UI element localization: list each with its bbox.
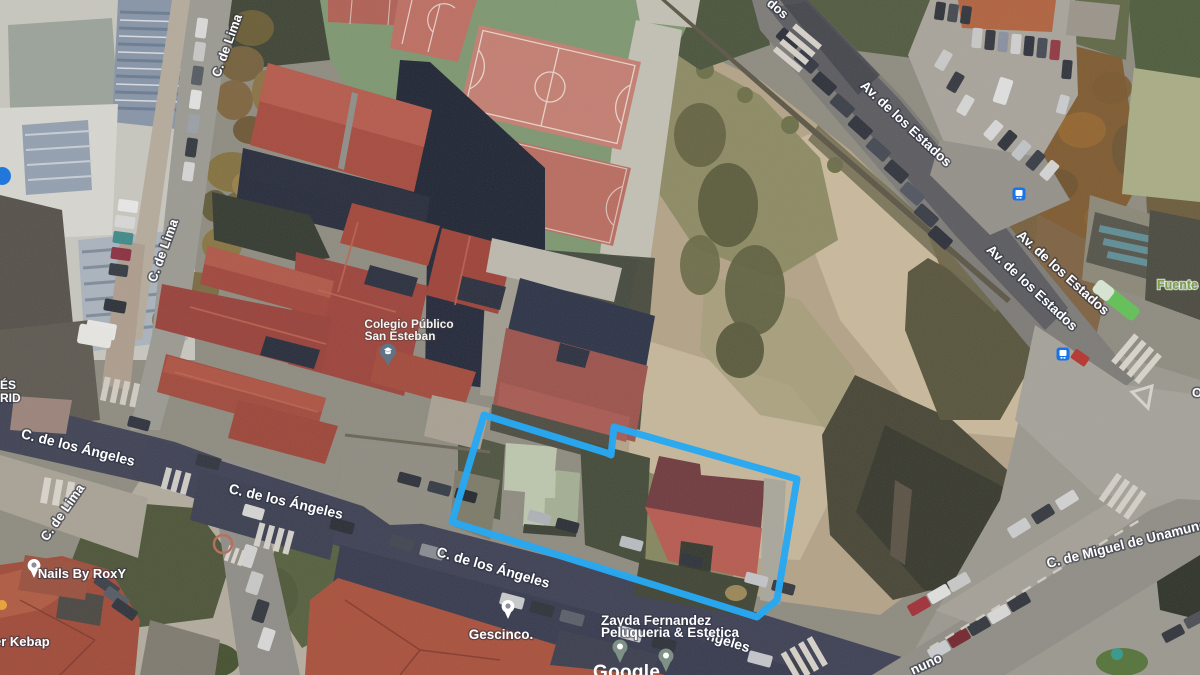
svg-text:Fuente d: Fuente d: [1157, 278, 1200, 292]
svg-text:Nails By RoxY: Nails By RoxY: [38, 566, 126, 581]
svg-text:Google: Google: [593, 662, 660, 675]
svg-text:ÉS: ÉS: [0, 377, 16, 392]
svg-text:Peluqueria & Estetica: Peluqueria & Estetica: [601, 625, 740, 640]
svg-text:Oc: Oc: [1192, 385, 1200, 400]
svg-text:RID: RID: [0, 391, 21, 405]
svg-text:San Esteban: San Esteban: [365, 329, 436, 343]
svg-text:er Kebap: er Kebap: [0, 634, 50, 649]
svg-text:Gescinco.: Gescinco.: [469, 627, 534, 642]
